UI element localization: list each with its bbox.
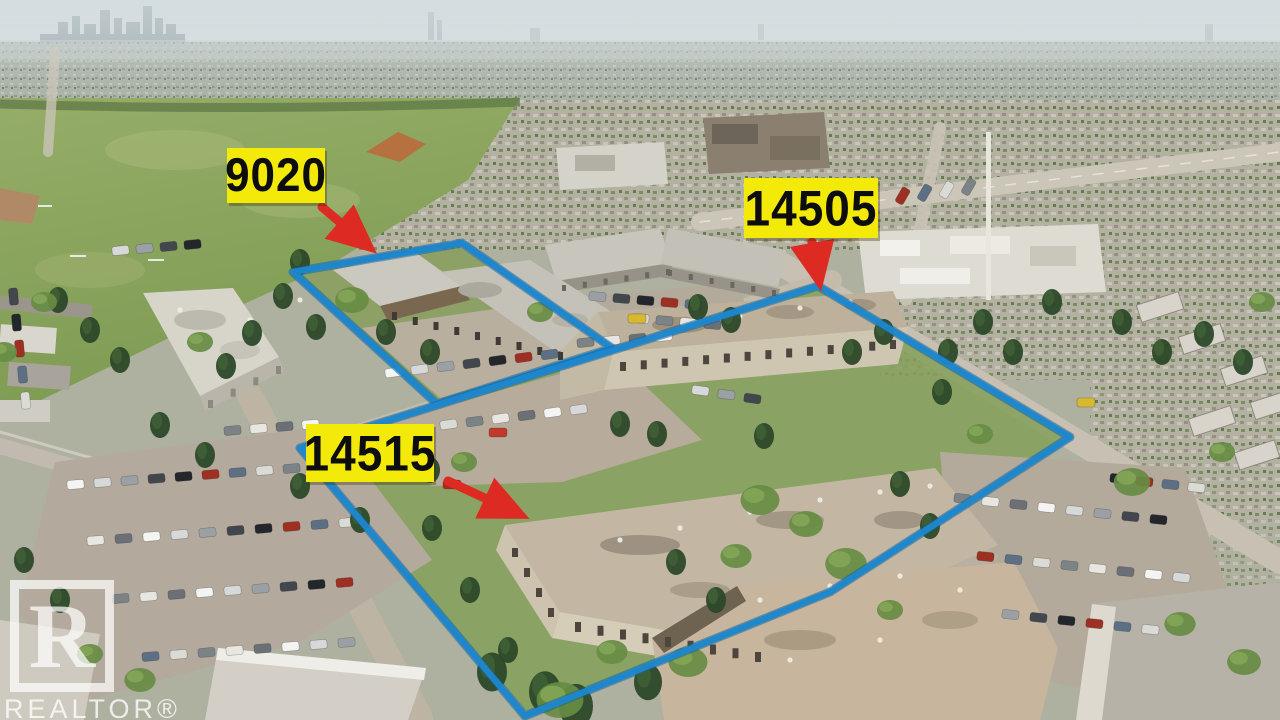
aerial-photo: 9020 14505 14515 R REALTOR®: [0, 0, 1280, 720]
annotation-overlay: [0, 0, 1280, 720]
address-text: 14515: [304, 424, 437, 482]
realtor-watermark: R REALTOR®: [10, 580, 181, 720]
address-text: 9020: [225, 149, 327, 203]
address-label-14515: 14515: [306, 424, 434, 482]
parcel-14505-14515: [300, 286, 1070, 716]
address-arrow-14515: [448, 481, 519, 514]
address-arrow-9020: [322, 207, 368, 246]
address-label-9020: 9020: [227, 148, 325, 203]
parcel-9020-shadow: [293, 243, 612, 404]
realtor-logo: R: [10, 580, 114, 692]
realtor-text: REALTOR®: [4, 694, 181, 720]
address-arrow-14505: [812, 242, 819, 280]
address-text: 14505: [745, 179, 878, 237]
realtor-logo-letter: R: [29, 597, 95, 675]
address-label-14505: 14505: [744, 178, 878, 238]
